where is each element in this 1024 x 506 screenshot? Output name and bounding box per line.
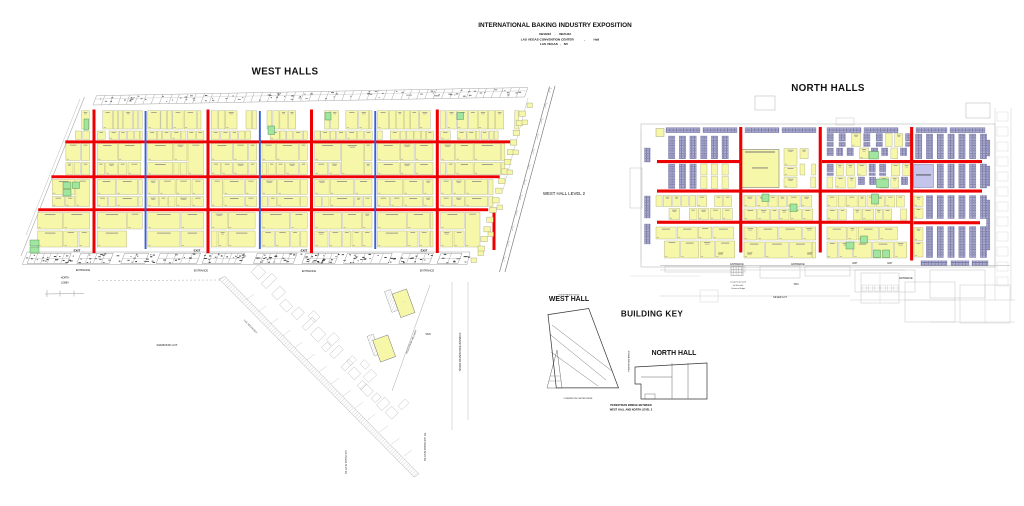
svg-text:PEDESTRIAN BRIDGE BETWEEN: PEDESTRIAN BRIDGE BETWEEN [610,403,651,407]
svg-text:TAXI: TAXI [793,283,798,286]
svg-text:CONVENTION CENTER DRIVE: CONVENTION CENTER DRIVE [564,398,593,400]
svg-text:09/18/22 - 09/21/22: 09/18/22 - 09/21/22 [539,32,571,36]
svg-text:WEST HALLS: WEST HALLS [252,67,319,78]
svg-text:EXIT: EXIT [421,249,428,253]
svg-text:DIAMOND LOT: DIAMOND LOT [157,343,178,347]
svg-text:WEST HALL LEVEL 2: WEST HALL LEVEL 2 [543,191,586,196]
svg-text:WEST HALL: WEST HALL [549,296,589,303]
svg-text:LAS VEGAS , NV: LAS VEGAS , NV [540,42,569,46]
svg-text:PEDESTRIAN BRIDGE: PEDESTRIAN BRIDGE [628,350,631,372]
svg-text:ENTRANCE: ENTRANCE [302,269,317,273]
svg-text:LOBBY: LOBBY [61,282,69,285]
svg-text:ENTRANCE: ENTRANCE [730,263,744,266]
svg-text:TAXI: TAXI [425,332,431,336]
svg-text:TO LAS VEGAS BLVD SO: TO LAS VEGAS BLVD SO [423,433,426,461]
svg-text:INTERNATIONAL BAKING INDUSTRY: INTERNATIONAL BAKING INDUSTRY EXPOSITION [478,22,632,29]
svg-text:Located in (L) and 3: Located in (L) and 3 [730,281,746,284]
svg-text:ENTRANCE: ENTRANCE [420,269,435,273]
svg-text:CONVENTION CENTER DRIVE: CONVENTION CENTER DRIVE [458,333,462,372]
svg-text:EXIT: EXIT [807,254,813,256]
svg-text:SILVER LOT: SILVER LOT [773,296,787,299]
svg-text:WEST HALL AND NORTH LEVEL 2: WEST HALL AND NORTH LEVEL 2 [610,408,653,412]
svg-text:NORTH HALLS: NORTH HALLS [791,83,865,94]
svg-text:EXIT: EXIT [194,249,201,253]
svg-text:ENTRANCE: ENTRANCE [791,263,805,266]
svg-text:LAS VEGAS BLVD SO: LAS VEGAS BLVD SO [344,450,347,474]
svg-text:EXIT: EXIT [718,254,724,256]
svg-text:Connector Bridge: Connector Bridge [731,287,745,290]
svg-text:NORTH HALL: NORTH HALL [652,350,697,357]
svg-text:BUILDING KEY: BUILDING KEY [621,310,684,319]
svg-text:for West Hal: for West Hal [733,284,743,287]
svg-text:EXIT: EXIT [852,263,858,265]
svg-text:EXIT: EXIT [74,249,81,253]
svg-text:ENTRANCE: ENTRANCE [76,268,91,272]
svg-text:EXIT: EXIT [301,249,308,253]
svg-text:NORTH: NORTH [61,277,70,280]
svg-text:ENTRANCE: ENTRANCE [194,269,209,273]
svg-text:EXIT: EXIT [747,254,753,256]
svg-text:EXIT: EXIT [887,263,893,265]
svg-text:ENTRANCE: ENTRANCE [899,277,913,280]
svg-text:···: ··· [402,301,404,303]
